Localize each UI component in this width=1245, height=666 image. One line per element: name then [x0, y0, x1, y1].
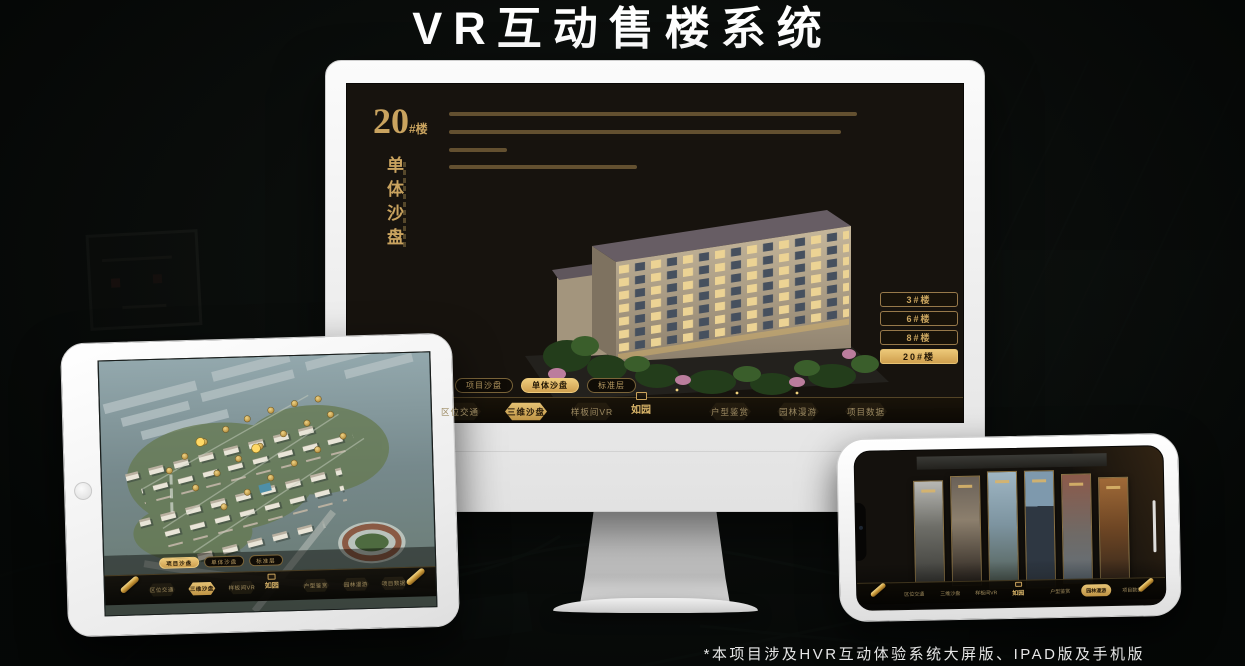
brand-logo: 如园 [631, 392, 651, 416]
floor-button-3[interactable]: 3#楼 [880, 292, 958, 307]
floor-button-6[interactable]: 6#楼 [880, 311, 958, 326]
tablet-nav-item-3d-sandbox[interactable]: 三维沙盘 [183, 579, 221, 598]
footnote: *本项目涉及HVR互动体验系统大屏版、IPAD版及手机版 [704, 643, 1145, 664]
building-number-suffix: #楼 [409, 122, 428, 136]
building-subtitle-english-bars [403, 162, 406, 248]
tablet-brand-logo: 如园 [264, 574, 278, 591]
phone-brand-logo-icon [1015, 582, 1022, 587]
tablet-nav-item-garden-tour[interactable]: 园林漫游 [337, 575, 375, 594]
building-number: 20 [373, 101, 409, 141]
phone-frame: 区位交通 三维沙盘 样板间VR 如园 户型鉴赏 园林漫游 项目数据 [836, 433, 1181, 623]
nav-item-3d-sandbox[interactable]: 三维沙盘 [495, 398, 557, 423]
monitor-stand-base [553, 598, 758, 613]
monitor-stand-neck [580, 512, 730, 604]
building-title: 20#楼 [373, 100, 428, 142]
subtab-standard-floor[interactable]: 标准层 [587, 378, 636, 393]
tablet-screen: 项目沙盘 单体沙盘 标准层 区位交通 三维沙盘 样板间VR 如园 户型鉴赏 园林… [97, 351, 437, 616]
nav-item-project-data[interactable]: 项目数据 [835, 398, 897, 423]
phone-nav-item-3d-sandbox[interactable]: 三维沙盘 [933, 586, 967, 601]
phone-nav-item-garden-tour[interactable]: 园林漫游 [1079, 583, 1113, 598]
tablet-brand-logo-icon [267, 574, 275, 580]
nav-item-garden-tour[interactable]: 园林漫游 [767, 398, 829, 423]
brand-logo-icon [636, 392, 647, 400]
nav-item-floorplans[interactable]: 户型鉴赏 [699, 398, 761, 423]
phone-screen: 区位交通 三维沙盘 样板间VR 如园 户型鉴赏 园林漫游 项目数据 [854, 445, 1167, 611]
tablet-home-button[interactable] [74, 482, 92, 500]
phone-nav-scroll-handle-left-icon[interactable] [870, 582, 887, 598]
phone-brand-logo: 如园 [1012, 582, 1024, 597]
phone-device: 区位交通 三维沙盘 样板间VR 如园 户型鉴赏 园林漫游 项目数据 [836, 433, 1181, 623]
tablet-frame: 项目沙盘 单体沙盘 标准层 区位交通 三维沙盘 样板间VR 如园 户型鉴赏 园林… [60, 333, 460, 638]
phone-nav-item-showroom-vr[interactable]: 样板间VR [969, 585, 1003, 600]
floor-button-8[interactable]: 8#楼 [880, 330, 958, 345]
sandbox-subtabs: 项目沙盘 单体沙盘 标准层 [455, 378, 636, 393]
phone-camera-icon [859, 526, 863, 530]
tablet-subtab-single-sandbox[interactable]: 单体沙盘 [204, 555, 244, 567]
page-title: VR互动售楼系统 [0, 0, 1245, 58]
brand-logo-text: 如园 [631, 401, 651, 416]
building-3d-render[interactable] [497, 150, 907, 412]
tablet-nav-item-location[interactable]: 区位交通 [143, 580, 181, 599]
subtab-single-sandbox[interactable]: 单体沙盘 [521, 378, 579, 393]
phone-nav-item-location[interactable]: 区位交通 [897, 587, 931, 602]
floor-button-20[interactable]: 20#楼 [880, 349, 958, 364]
tablet-subtab-project-sandbox[interactable]: 项目沙盘 [159, 557, 199, 569]
tablet-device: 项目沙盘 单体沙盘 标准层 区位交通 三维沙盘 样板间VR 如园 户型鉴赏 园林… [60, 333, 460, 638]
stage: VR互动售楼系统 20#楼 单体沙盘 [0, 0, 1245, 666]
phone-nav-item-floorplans[interactable]: 户型鉴赏 [1043, 584, 1077, 599]
tablet-nav-scroll-handle-left-icon[interactable] [120, 575, 140, 594]
tablet-nav-item-showroom-vr[interactable]: 样板间VR [223, 578, 261, 597]
phone-notch [856, 503, 867, 561]
tablet-subtab-standard-floor[interactable]: 标准层 [249, 554, 283, 566]
tablet-nav-item-floorplans[interactable]: 户型鉴赏 [297, 576, 335, 595]
nav-item-showroom-vr[interactable]: 样板间VR [561, 398, 623, 423]
floor-button-group: 3#楼 6#楼 8#楼 20#楼 [880, 292, 960, 368]
subtab-project-sandbox[interactable]: 项目沙盘 [455, 378, 513, 393]
